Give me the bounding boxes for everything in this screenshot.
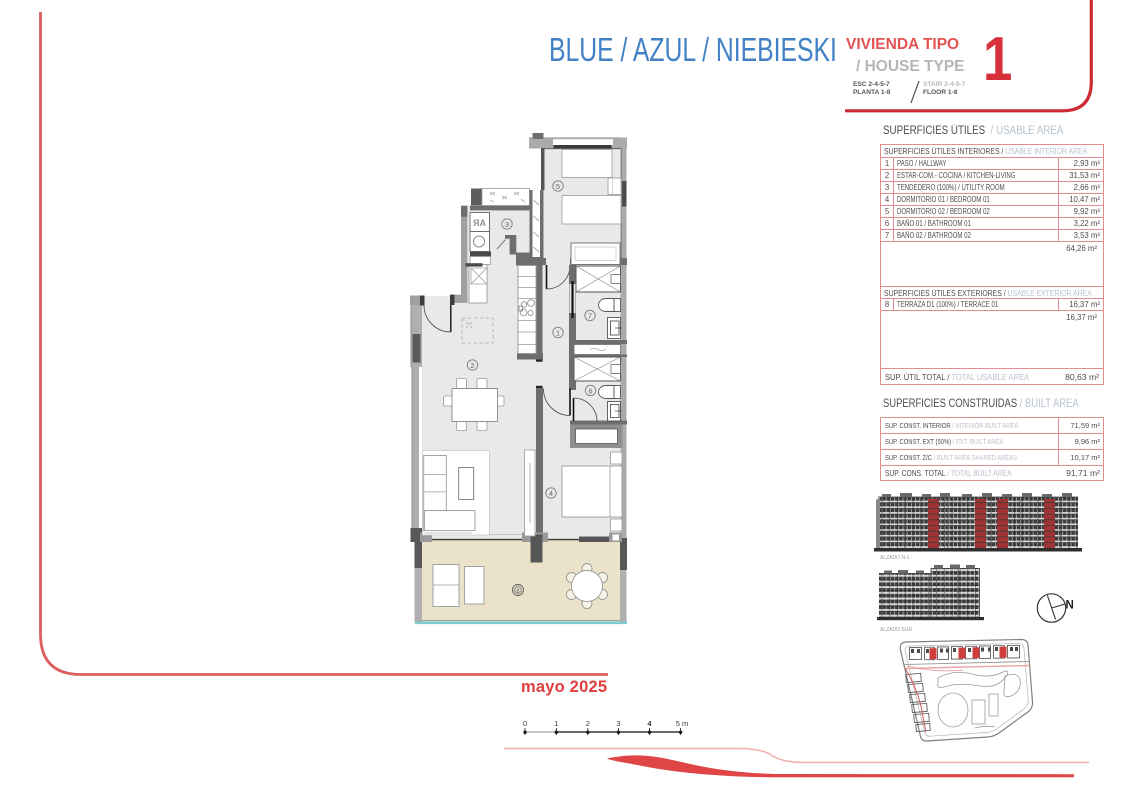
svg-text:4: 4: [647, 719, 652, 728]
svg-text:2: 2: [470, 361, 474, 370]
svg-text:ALZADO N-1: ALZADO N-1: [880, 555, 910, 561]
svg-text:6: 6: [588, 386, 592, 395]
svg-text:N: N: [1066, 600, 1074, 612]
svg-text:4: 4: [549, 489, 553, 498]
svg-text:8: 8: [516, 588, 519, 594]
svg-text:ALZADO SUR: ALZADO SUR: [880, 627, 912, 633]
svg-text:7: 7: [588, 311, 592, 320]
svg-text:5 m: 5 m: [676, 719, 689, 728]
svg-text:1: 1: [556, 328, 560, 337]
svg-text:ЯA: ЯA: [473, 218, 486, 228]
svg-text:3: 3: [616, 719, 620, 728]
svg-text:2: 2: [586, 719, 590, 728]
svg-text:1: 1: [554, 719, 558, 728]
svg-text:0: 0: [523, 719, 527, 728]
svg-text:3: 3: [505, 220, 509, 229]
svg-text:5: 5: [556, 182, 560, 191]
